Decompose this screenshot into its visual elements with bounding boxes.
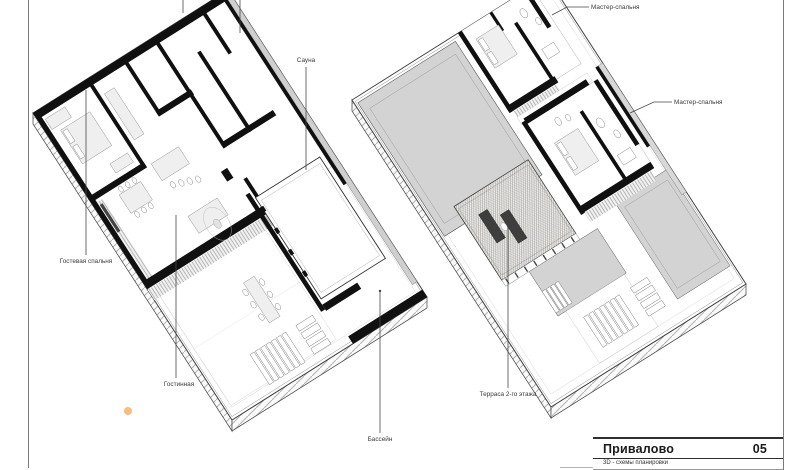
leader-terrace-dot (507, 225, 509, 227)
title-block: Привалово 05 3D - схемы планировки (593, 437, 783, 470)
label-pool: Бассейн (368, 435, 393, 443)
sheet-canvas: Гостевая спальня Гостинная Бассейн Сауна… (0, 0, 790, 470)
sheet-number: 05 (753, 442, 767, 456)
floor1-axonometric-view (33, 0, 427, 431)
orange-marker-dot (124, 407, 132, 415)
label-living-room: Гостинная (164, 381, 195, 388)
label-terrace: Терраса 2-го этажа (480, 391, 537, 398)
label-master-bedroom-2: Мастер-спальня (674, 99, 723, 106)
leader-pool-dot (379, 290, 381, 292)
label-sauna: Сауна (297, 57, 316, 64)
leader-master-bedroom-2 (630, 102, 672, 113)
drawing-sheet: Гостевая спальня Гостинная Бассейн Сауна… (0, 0, 790, 470)
floor2-axonometric-view (352, 0, 746, 418)
sheet-title: 3D - схемы планировки (593, 459, 783, 470)
title-block-main-row: Привалово 05 (593, 439, 783, 459)
label-guest-bedroom: Гостевая спальня (60, 258, 113, 265)
project-name: Привалово (603, 442, 674, 456)
label-master-bedroom-1: Мастер-спальня (591, 4, 640, 11)
